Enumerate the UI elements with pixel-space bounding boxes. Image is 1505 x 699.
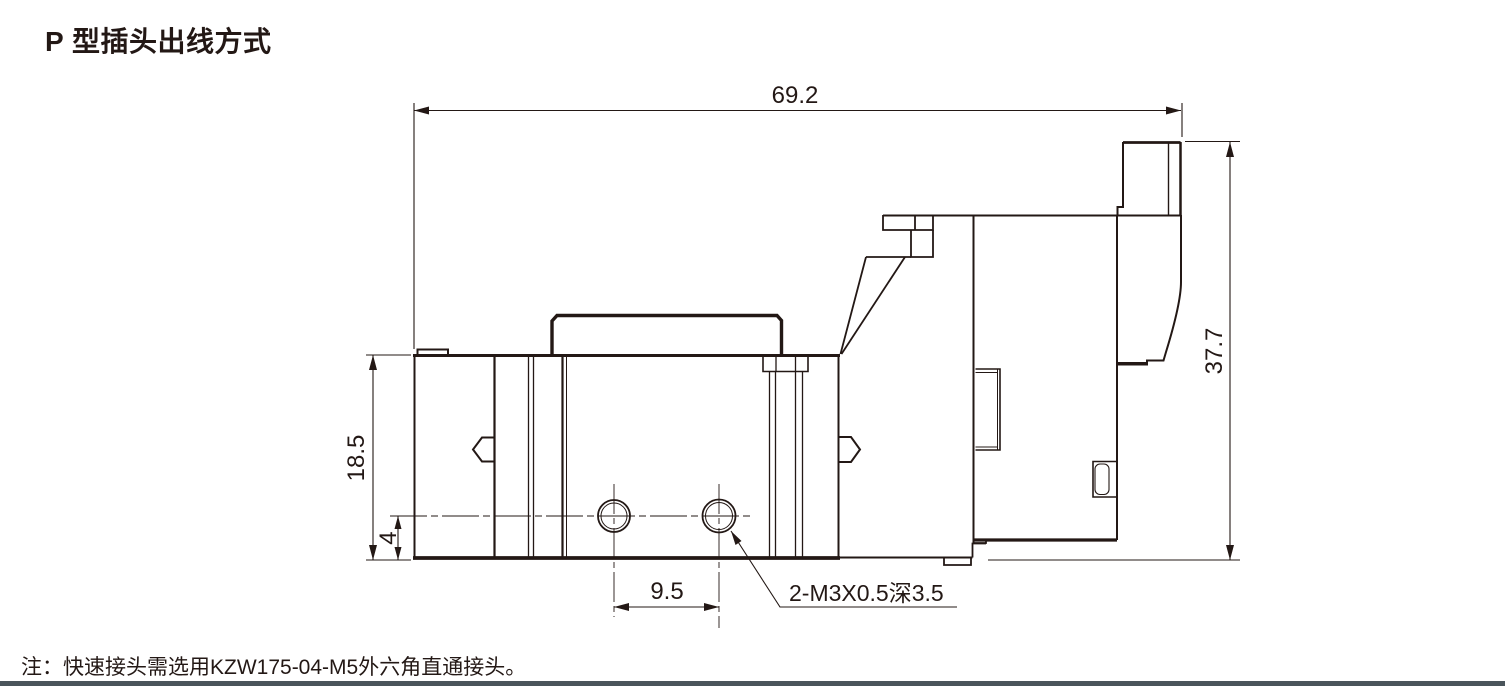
arrow-top bbox=[395, 516, 402, 529]
right-clip bbox=[839, 437, 861, 462]
end-block bbox=[883, 216, 1181, 544]
dim-body-height-label: 18.5 bbox=[343, 435, 370, 482]
technical-drawing: 69.2 37.7 18.5 4 bbox=[0, 0, 1505, 699]
top-cover bbox=[552, 316, 782, 355]
dimension-hole-offset: 4 bbox=[375, 516, 402, 560]
arrow-left bbox=[614, 603, 629, 611]
arrow-right bbox=[1166, 107, 1181, 115]
leader-arrow bbox=[731, 531, 742, 545]
arrow-left bbox=[414, 107, 429, 115]
plug-tower bbox=[1118, 142, 1181, 215]
drawing-page: P 型插头出线方式 bbox=[0, 0, 1505, 699]
arrow-bottom bbox=[1226, 545, 1234, 560]
arrow-top bbox=[369, 355, 377, 370]
dim-total-height-label: 37.7 bbox=[1201, 328, 1228, 375]
arrow-right bbox=[704, 603, 719, 611]
dim-total-width-label: 69.2 bbox=[772, 82, 819, 109]
arrow-top bbox=[1226, 142, 1234, 157]
arrow-bottom bbox=[369, 545, 377, 560]
note-text: 注：快速接头需选用KZW175-04-M5外六角直通接头。 bbox=[21, 651, 526, 681]
bottom-rule bbox=[0, 681, 1505, 686]
thread-callout: 2-M3X0.5深3.5 bbox=[731, 531, 957, 607]
left-clip bbox=[473, 438, 495, 462]
arrow-bottom bbox=[395, 547, 402, 560]
base-strip bbox=[840, 544, 986, 566]
dim-hole-offset-label: 4 bbox=[375, 531, 402, 544]
mounting-holes bbox=[390, 484, 751, 628]
cable-bracket bbox=[841, 215, 934, 354]
valve-body bbox=[413, 350, 860, 559]
plug-housing bbox=[1118, 215, 1181, 365]
dim-hole-spacing-label: 9.5 bbox=[650, 578, 683, 605]
base-tab bbox=[944, 558, 971, 565]
latch-detail bbox=[1093, 462, 1117, 498]
thread-callout-label: 2-M3X0.5深3.5 bbox=[789, 580, 944, 606]
connector-interface bbox=[976, 369, 1001, 450]
dimension-hole-spacing: 9.5 bbox=[614, 578, 719, 611]
dimension-body-height: 18.5 bbox=[343, 355, 411, 560]
